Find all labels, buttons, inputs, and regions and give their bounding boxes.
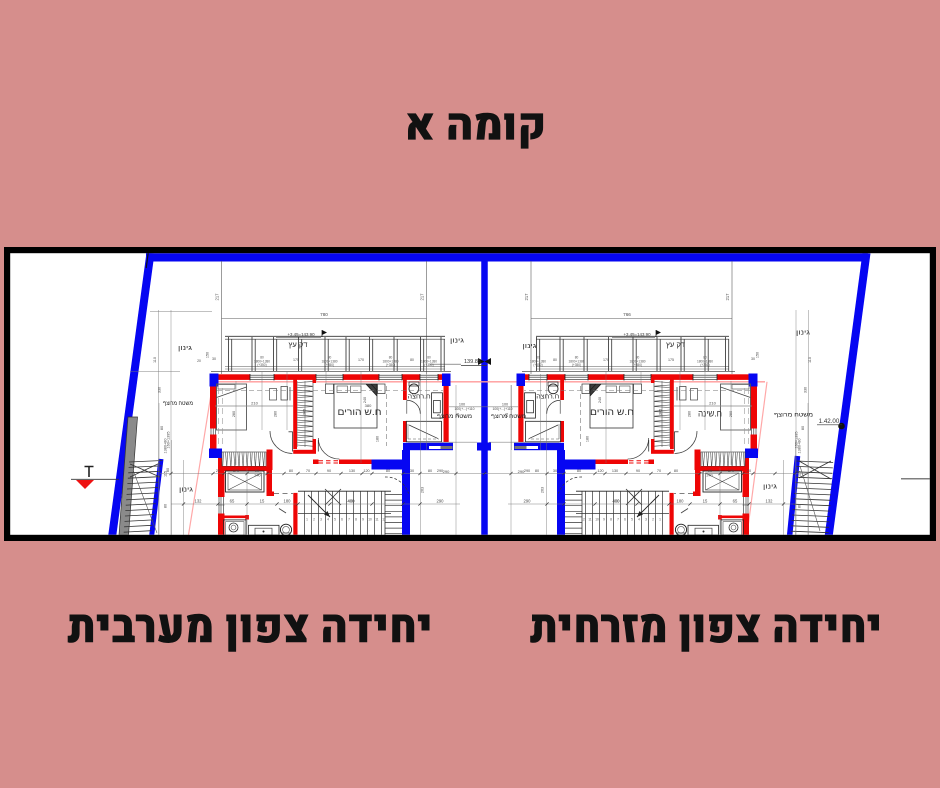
svg-text:90: 90 (708, 469, 712, 473)
svg-text:263: 263 (541, 487, 545, 493)
svg-text:290: 290 (443, 469, 450, 474)
svg-text:10: 10 (595, 518, 599, 522)
svg-text:1: 1 (306, 518, 308, 522)
svg-text:80: 80 (798, 504, 802, 508)
svg-text:110: 110 (153, 357, 157, 363)
svg-text:12: 12 (382, 518, 386, 522)
svg-text:170: 170 (233, 469, 239, 473)
svg-text:8: 8 (610, 518, 612, 522)
svg-text:180: 180 (284, 499, 292, 504)
svg-text:280: 280 (232, 411, 236, 417)
svg-text:65: 65 (733, 499, 738, 504)
svg-text:150: 150 (206, 352, 210, 358)
svg-text:4: 4 (638, 518, 640, 522)
svg-text:80: 80 (674, 469, 678, 473)
svg-text:80: 80 (386, 469, 390, 473)
svg-text:30: 30 (553, 469, 557, 473)
svg-text:290: 290 (524, 499, 532, 504)
svg-text:11: 11 (375, 518, 379, 522)
svg-text:280: 280 (688, 411, 692, 417)
svg-text:ח.שינה: ח.שינה (698, 409, 722, 419)
svg-text:+3.45=143.90: +3.45=143.90 (623, 332, 651, 337)
svg-text:100: 100 (502, 403, 508, 407)
svg-text:7: 7 (348, 518, 350, 522)
svg-text:120: 120 (597, 469, 603, 473)
svg-text:4: 4 (327, 518, 329, 522)
svg-text:280: 280 (729, 411, 733, 417)
svg-text:70: 70 (657, 469, 661, 473)
svg-text:(+350): (+350) (257, 363, 266, 367)
svg-text:100: 100 (459, 403, 465, 407)
svg-text:210: 210 (709, 400, 716, 405)
svg-text:9: 9 (603, 518, 605, 522)
svg-text:305: 305 (659, 409, 663, 415)
svg-text:1: 1 (659, 518, 661, 522)
svg-text:דק עץ: דק עץ (289, 340, 308, 349)
svg-text:263: 263 (421, 487, 425, 493)
svg-text:766: 766 (623, 312, 631, 317)
svg-text:130: 130 (349, 469, 355, 473)
svg-text:(+350): (+350) (424, 363, 433, 367)
svg-text:דק עץ: דק עץ (666, 340, 685, 349)
svg-text:217: 217 (524, 293, 529, 301)
svg-text:30: 30 (410, 469, 414, 473)
svg-text:240: 240 (706, 473, 712, 477)
svg-text:ח.רחצה: ח.רחצה (536, 393, 559, 400)
svg-text:170: 170 (603, 358, 609, 362)
svg-text:(+350): (+350) (572, 363, 581, 367)
svg-text:290: 290 (518, 469, 525, 474)
svg-text:גינון: גינון (763, 484, 777, 491)
svg-text:3: 3 (320, 518, 322, 522)
svg-text:1.42.00: 1.42.00 (819, 418, 840, 425)
svg-text:80: 80 (553, 358, 557, 362)
svg-text:400: 400 (613, 499, 621, 504)
svg-text:11: 11 (588, 518, 592, 522)
svg-text:100(+...)+110: 100(+...)+110 (492, 407, 512, 411)
svg-text:ח.ש הורים: ח.ש הורים (590, 407, 634, 417)
svg-text:גינון: גינון (796, 330, 810, 337)
svg-text:5: 5 (334, 518, 336, 522)
svg-text:3: 3 (645, 518, 647, 522)
svg-text:+3.45=143.90: +3.45=143.90 (287, 332, 315, 337)
svg-text:12: 12 (581, 518, 585, 522)
svg-text:240: 240 (254, 473, 260, 477)
svg-text:80: 80 (535, 469, 539, 473)
svg-text:130: 130 (612, 469, 618, 473)
svg-text:100(+...)+110: 100(+...)+110 (454, 407, 474, 411)
svg-text:132: 132 (766, 499, 774, 504)
svg-text:80: 80 (801, 426, 805, 430)
svg-text:139.85: 139.85 (464, 359, 481, 365)
svg-text:7: 7 (617, 518, 619, 522)
svg-text:160+1395: 160+1395 (167, 432, 171, 449)
svg-text:90: 90 (255, 469, 259, 473)
svg-text:80: 80 (428, 469, 432, 473)
svg-text:120: 120 (363, 469, 369, 473)
svg-text:80: 80 (166, 468, 170, 472)
svg-text:217: 217 (725, 293, 730, 301)
svg-text:290: 290 (437, 499, 445, 504)
svg-text:65: 65 (230, 499, 235, 504)
svg-text:80: 80 (795, 468, 799, 472)
svg-text:110: 110 (808, 357, 812, 363)
svg-text:380: 380 (365, 403, 372, 408)
svg-text:180: 180 (677, 499, 685, 504)
svg-text:משטח מרוצף: משטח מרוצף (163, 400, 193, 407)
svg-text:6: 6 (624, 518, 626, 522)
svg-text:(+350): (+350) (533, 363, 542, 367)
svg-text:305: 305 (303, 409, 307, 415)
svg-text:175: 175 (293, 358, 299, 362)
svg-text:משטח מרוצף: משטח מרוצף (437, 413, 472, 420)
svg-text:2: 2 (313, 518, 315, 522)
svg-text:170: 170 (728, 469, 734, 473)
svg-text:150: 150 (756, 352, 760, 358)
svg-text:290: 290 (524, 469, 530, 473)
svg-text:10: 10 (368, 518, 372, 522)
svg-text:2: 2 (652, 518, 654, 522)
svg-text:גינון: גינון (179, 487, 193, 494)
svg-text:ח.רחצה: ח.רחצה (408, 393, 431, 400)
svg-text:80: 80 (160, 426, 164, 430)
svg-text:8: 8 (355, 518, 357, 522)
svg-text:240: 240 (598, 397, 602, 403)
svg-text:90: 90 (636, 469, 640, 473)
svg-text:180: 180 (586, 436, 590, 442)
svg-text:30: 30 (212, 357, 216, 361)
svg-text:גינון: גינון (178, 345, 192, 352)
svg-text:80: 80 (577, 469, 581, 473)
svg-text:180: 180 (376, 436, 380, 442)
svg-text:70: 70 (306, 469, 310, 473)
svg-text:132: 132 (195, 499, 203, 504)
svg-text:20: 20 (197, 359, 201, 363)
svg-text:5: 5 (631, 518, 633, 522)
svg-text:217: 217 (420, 293, 425, 301)
svg-text:160+1395: 160+1395 (795, 432, 799, 449)
svg-text:(+350): (+350) (386, 363, 395, 367)
svg-text:(+350): (+350) (633, 363, 642, 367)
svg-text:175: 175 (668, 358, 674, 362)
svg-text:217: 217 (215, 293, 220, 301)
svg-text:330: 330 (158, 387, 162, 393)
svg-text:330: 330 (804, 387, 808, 393)
svg-text:6: 6 (341, 518, 343, 522)
svg-text:280: 280 (273, 411, 277, 417)
svg-text:170: 170 (358, 358, 364, 362)
svg-text:15: 15 (703, 499, 708, 504)
svg-text:210: 210 (251, 400, 258, 405)
svg-text:משטח מרוצף: משטח מרוצף (774, 412, 813, 419)
svg-text:780: 780 (320, 312, 328, 317)
svg-text:80: 80 (410, 358, 414, 362)
svg-text:80: 80 (289, 469, 293, 473)
svg-text:משטח מרוצף: משטח מרוצף (491, 413, 526, 420)
svg-text:15: 15 (260, 499, 265, 504)
svg-text:20: 20 (747, 469, 751, 473)
svg-text:30: 30 (751, 357, 755, 361)
svg-text:9: 9 (362, 518, 364, 522)
svg-text:(+350): (+350) (325, 363, 334, 367)
svg-text:ח.ש הורים: ח.ש הורים (338, 407, 382, 417)
svg-text:90: 90 (327, 469, 331, 473)
svg-text:20: 20 (216, 469, 220, 473)
svg-text:גינון: גינון (523, 343, 537, 350)
svg-text:(+350): (+350) (700, 363, 709, 367)
svg-text:400: 400 (348, 499, 356, 504)
svg-text:80: 80 (164, 504, 168, 508)
svg-text:גינון: גינון (450, 338, 464, 345)
